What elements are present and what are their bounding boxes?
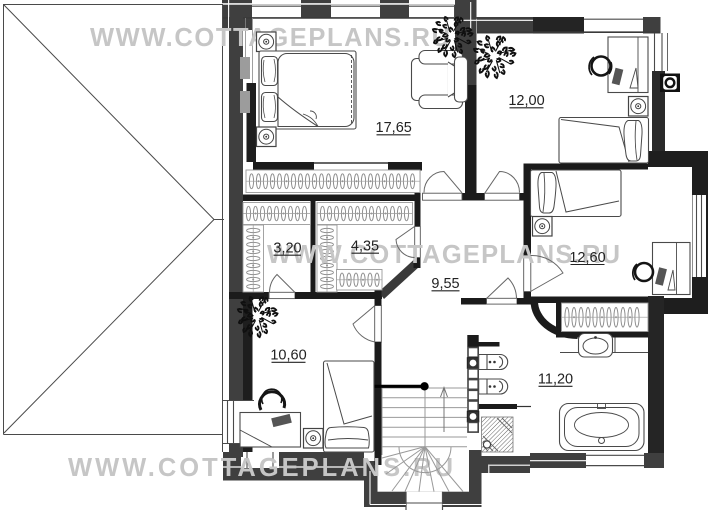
svg-text:12,60: 12,60: [569, 250, 605, 266]
svg-text:9,55: 9,55: [431, 276, 459, 292]
svg-text:3,20: 3,20: [273, 240, 301, 256]
svg-text:WWW.COTTAGEPLANS.RU: WWW.COTTAGEPLANS.RU: [267, 241, 620, 269]
svg-text:11,20: 11,20: [538, 372, 573, 388]
svg-text:12,00: 12,00: [508, 93, 544, 109]
svg-text:4,35: 4,35: [351, 238, 379, 254]
svg-text:10,60: 10,60: [270, 348, 306, 364]
svg-text:17,65: 17,65: [376, 120, 412, 136]
